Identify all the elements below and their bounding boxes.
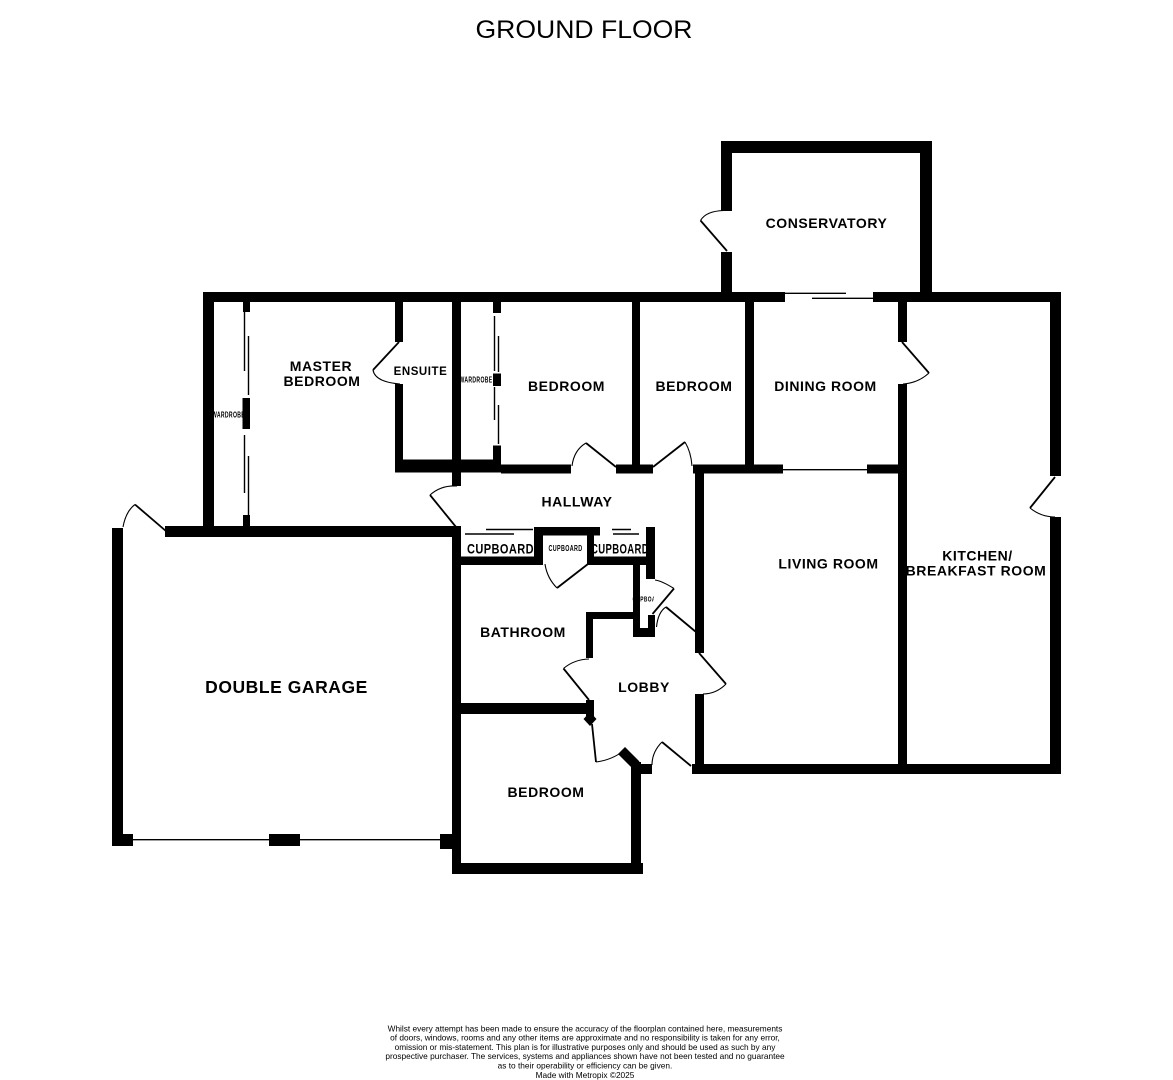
svg-text:Made with Metropix ©2025: Made with Metropix ©2025 <box>536 1070 635 1080</box>
svg-text:DINING ROOM: DINING ROOM <box>774 378 877 394</box>
svg-text:BEDROOM: BEDROOM <box>656 378 733 394</box>
svg-text:DOUBLE GARAGE: DOUBLE GARAGE <box>205 677 368 697</box>
svg-text:BATHROOM: BATHROOM <box>480 624 566 640</box>
svg-text:LIVING ROOM: LIVING ROOM <box>778 556 878 572</box>
svg-text:CUPBOARD: CUPBOARD <box>591 541 649 557</box>
svg-text:BEDROOM: BEDROOM <box>528 378 605 394</box>
svg-text:LOBBY: LOBBY <box>618 679 670 695</box>
svg-text:MASTER: MASTER <box>290 358 352 374</box>
svg-text:ENSUITE: ENSUITE <box>394 366 448 378</box>
svg-text:CONSERVATORY: CONSERVATORY <box>766 215 888 231</box>
svg-text:WARDROBE: WARDROBE <box>460 375 493 385</box>
svg-text:CUPBOARD: CUPBOARD <box>549 544 583 553</box>
svg-text:HALLWAY: HALLWAY <box>541 494 612 510</box>
svg-text:GROUND FLOOR: GROUND FLOOR <box>476 16 693 44</box>
svg-text:CUPBOARD: CUPBOARD <box>467 541 534 557</box>
svg-text:BEDROOM: BEDROOM <box>508 784 585 800</box>
svg-text:BREAKFAST ROOM: BREAKFAST ROOM <box>906 563 1047 579</box>
svg-text:KITCHEN/: KITCHEN/ <box>942 548 1013 564</box>
svg-text:WARDROBE: WARDROBE <box>212 410 245 420</box>
svg-text:BEDROOM: BEDROOM <box>284 373 361 389</box>
